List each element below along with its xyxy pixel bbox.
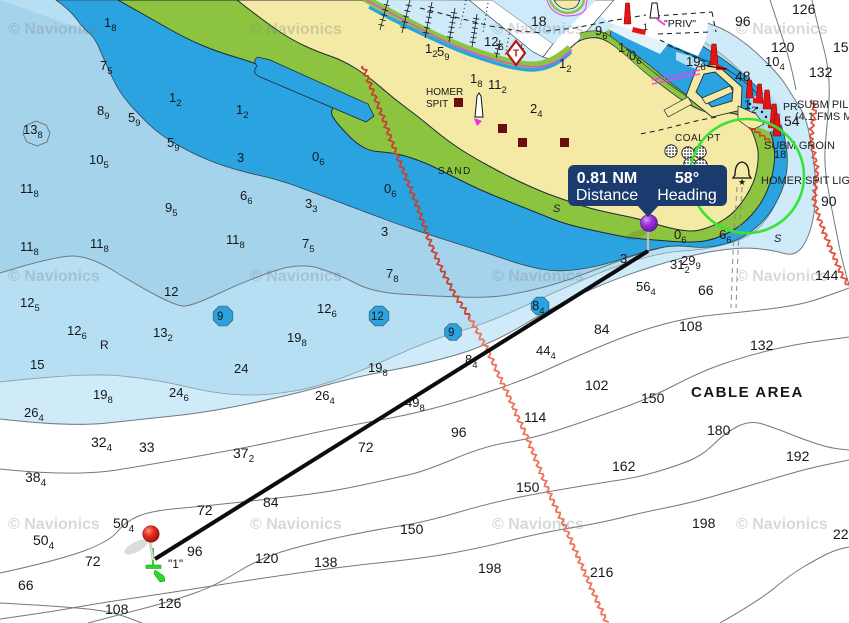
svg-text:108: 108	[679, 318, 703, 334]
svg-text:15: 15	[30, 357, 44, 372]
svg-text:PR: PR	[783, 101, 798, 113]
svg-text:© Navionics: © Navionics	[8, 516, 100, 533]
svg-text:33: 33	[139, 439, 155, 455]
svg-text:126: 126	[792, 1, 816, 17]
svg-text:120: 120	[255, 550, 279, 566]
svg-text:1: 1	[643, 22, 648, 32]
svg-text:58°: 58°	[675, 170, 699, 187]
svg-text:★: ★	[738, 177, 746, 187]
svg-text:150: 150	[516, 479, 540, 495]
svg-text:66: 66	[698, 282, 714, 298]
svg-text:R: R	[100, 338, 109, 352]
svg-text:"PRIV": "PRIV"	[664, 18, 696, 30]
svg-text:24: 24	[234, 361, 248, 376]
svg-text:SPIT: SPIT	[426, 99, 448, 110]
svg-text:72: 72	[85, 553, 101, 569]
svg-text:9: 9	[448, 327, 454, 339]
svg-text:66: 66	[18, 577, 34, 593]
svg-text:© Navionics: © Navionics	[736, 516, 828, 533]
svg-text:T: T	[513, 49, 519, 60]
svg-text:96: 96	[735, 13, 751, 29]
svg-text:HOMER: HOMER	[426, 87, 463, 98]
svg-text:84: 84	[594, 321, 610, 337]
svg-text:144: 144	[815, 267, 839, 283]
svg-text:216: 216	[590, 564, 614, 580]
svg-text:© Navionics: © Navionics	[250, 516, 342, 533]
svg-text:3: 3	[237, 150, 244, 165]
svg-text:102: 102	[585, 377, 609, 393]
svg-text:72: 72	[358, 439, 374, 455]
svg-text:12: 12	[371, 311, 384, 323]
svg-text:Distance: Distance	[576, 187, 638, 204]
svg-text:114: 114	[524, 409, 547, 425]
svg-text:108: 108	[105, 601, 129, 617]
svg-text:S: S	[553, 203, 561, 215]
svg-text:138: 138	[314, 554, 338, 570]
svg-text:132: 132	[750, 337, 774, 353]
svg-text:© Navionics: © Navionics	[250, 268, 342, 285]
svg-text:© Navionics: © Navionics	[250, 21, 342, 38]
svg-text:90: 90	[821, 193, 837, 209]
svg-text:3: 3	[381, 224, 388, 239]
svg-text:© Navionics: © Navionics	[492, 268, 584, 285]
svg-text:198: 198	[478, 560, 502, 576]
svg-text:96: 96	[451, 424, 467, 440]
svg-text:SAND: SAND	[438, 166, 472, 177]
svg-text:© Navionics: © Navionics	[8, 21, 100, 38]
svg-text:126: 126	[158, 595, 182, 611]
svg-text:120: 120	[771, 39, 795, 55]
svg-text:162: 162	[612, 458, 636, 474]
svg-text:18: 18	[774, 149, 786, 161]
svg-text:12: 12	[164, 284, 178, 299]
svg-text:0.81 NM: 0.81 NM	[577, 170, 637, 187]
svg-text:96: 96	[187, 543, 203, 559]
svg-text:192: 192	[786, 448, 810, 464]
svg-text:SUBM PILING: SUBM PILING	[797, 99, 849, 111]
svg-text:© Navionics: © Navionics	[492, 516, 584, 533]
svg-text:COAL PT: COAL PT	[675, 133, 721, 144]
svg-text:(4.1 FMS M: (4.1 FMS M	[795, 111, 849, 123]
svg-text:CABLE AREA: CABLE AREA	[691, 384, 804, 401]
svg-text:150: 150	[400, 521, 424, 537]
svg-text:S: S	[774, 233, 782, 245]
svg-text:18: 18	[531, 13, 547, 29]
svg-text:"1": "1"	[168, 557, 183, 571]
svg-text:198: 198	[692, 515, 716, 531]
svg-text:© Navionics: © Navionics	[8, 268, 100, 285]
svg-text:Heading: Heading	[657, 187, 717, 204]
svg-text:9: 9	[217, 311, 223, 323]
svg-text:72: 72	[197, 502, 213, 518]
svg-text:132: 132	[809, 64, 833, 80]
svg-text:226: 226	[833, 526, 849, 542]
svg-text:180: 180	[707, 422, 731, 438]
svg-text:150: 150	[833, 39, 849, 55]
svg-text:150: 150	[641, 390, 665, 406]
svg-text:84: 84	[263, 494, 279, 510]
